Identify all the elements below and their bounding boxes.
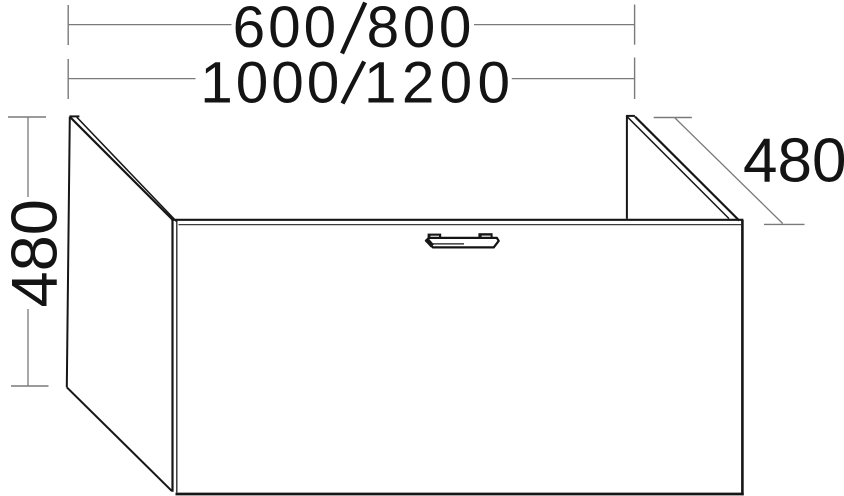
svg-text:1200: 1200: [364, 51, 515, 116]
svg-text:480: 480: [743, 127, 844, 196]
svg-text:1000: 1000: [200, 51, 342, 116]
svg-text:480: 480: [0, 199, 71, 307]
